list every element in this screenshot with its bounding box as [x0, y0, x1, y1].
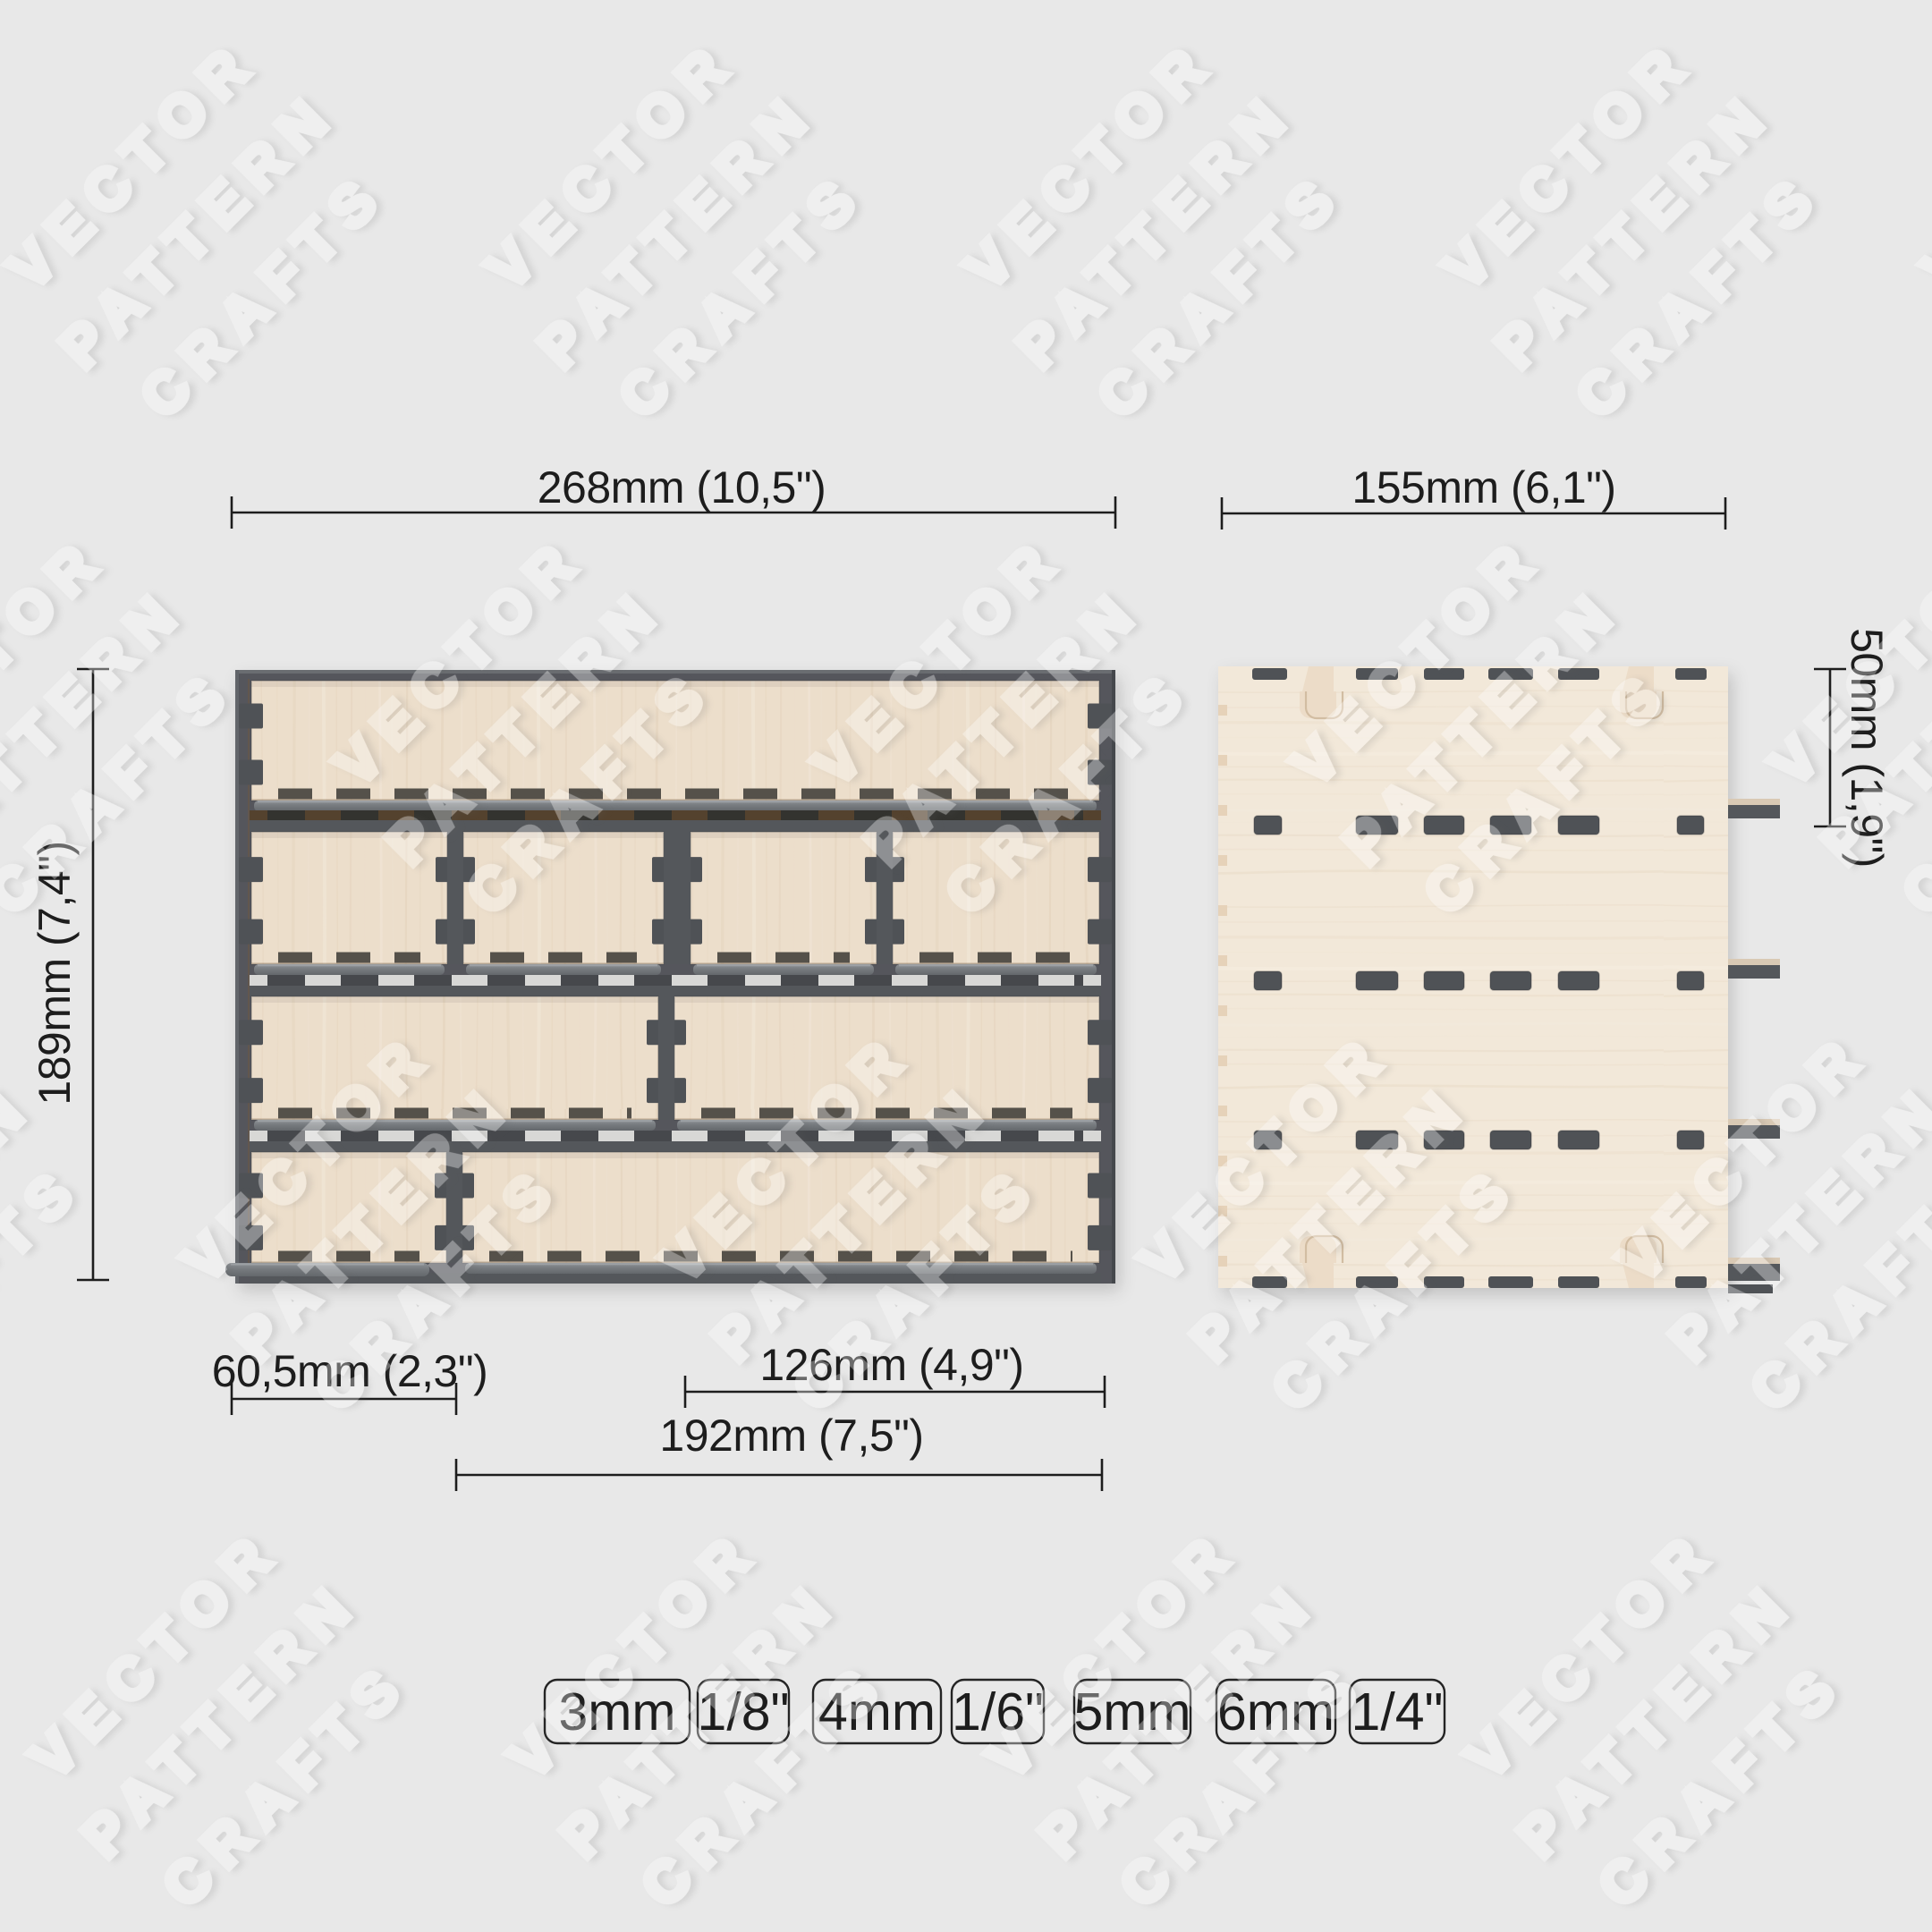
svg-text:155mm (6,1"): 155mm (6,1")	[1352, 462, 1615, 513]
svg-text:192mm (7,5"): 192mm (7,5")	[659, 1411, 923, 1461]
svg-text:268mm (10,5"): 268mm (10,5")	[538, 462, 826, 513]
